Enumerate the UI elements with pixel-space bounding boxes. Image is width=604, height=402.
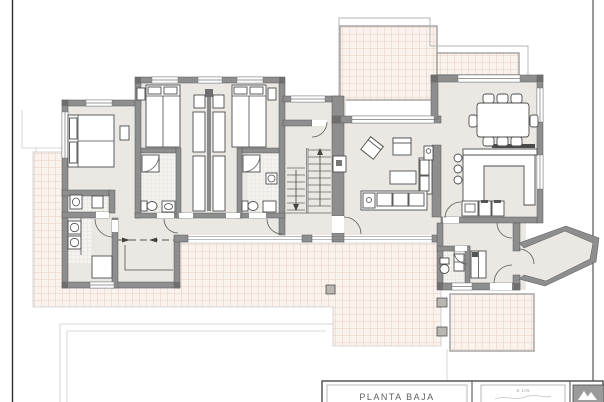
floor-plan-sheet: PLANTA BAJA E: 1/75 — [0, 0, 604, 402]
logo-mountains-icon — [573, 385, 604, 402]
chair — [511, 137, 522, 146]
wc — [92, 196, 103, 208]
toilet — [248, 202, 258, 211]
stair-column — [333, 156, 346, 172]
sofa-bottom — [361, 191, 427, 210]
chair — [483, 137, 494, 146]
plan-title: PLANTA BAJA — [359, 392, 434, 402]
oven — [462, 201, 478, 216]
chair — [497, 94, 508, 103]
chair — [511, 94, 522, 103]
chair — [530, 115, 538, 127]
chair — [469, 115, 477, 127]
toilet-tank — [440, 258, 449, 264]
double-bed — [68, 115, 114, 167]
nightstand — [120, 126, 129, 140]
side-table — [424, 146, 433, 160]
rear-terrace — [450, 294, 534, 351]
toilet — [147, 202, 157, 211]
title-block: PLANTA BAJA E: 1/75 — [322, 381, 604, 402]
sofa-right — [419, 158, 432, 194]
chair — [497, 137, 508, 146]
scale-label: E: 1/75 — [517, 388, 530, 393]
cooktop — [492, 201, 504, 216]
dressing-area — [193, 89, 225, 211]
toilet — [440, 265, 449, 274]
dining-table — [477, 103, 529, 137]
toilet-tank — [242, 201, 248, 211]
sink — [70, 195, 82, 209]
counter — [92, 256, 112, 278]
stool — [454, 154, 462, 162]
hall-closet — [471, 251, 486, 278]
sink-unit — [479, 201, 491, 216]
nightstand — [137, 88, 145, 100]
coffee-table — [390, 171, 416, 184]
nightstand — [268, 88, 276, 100]
stool — [454, 176, 462, 184]
toilet-tank — [141, 201, 147, 211]
chair — [483, 94, 494, 103]
stool — [454, 165, 462, 173]
upper-terrace-right — [437, 53, 519, 75]
upper-terrace-left — [340, 26, 437, 100]
sink — [162, 201, 175, 212]
floor-plan-drawing: PLANTA BAJA E: 1/75 — [0, 0, 604, 402]
armchair — [393, 138, 411, 155]
